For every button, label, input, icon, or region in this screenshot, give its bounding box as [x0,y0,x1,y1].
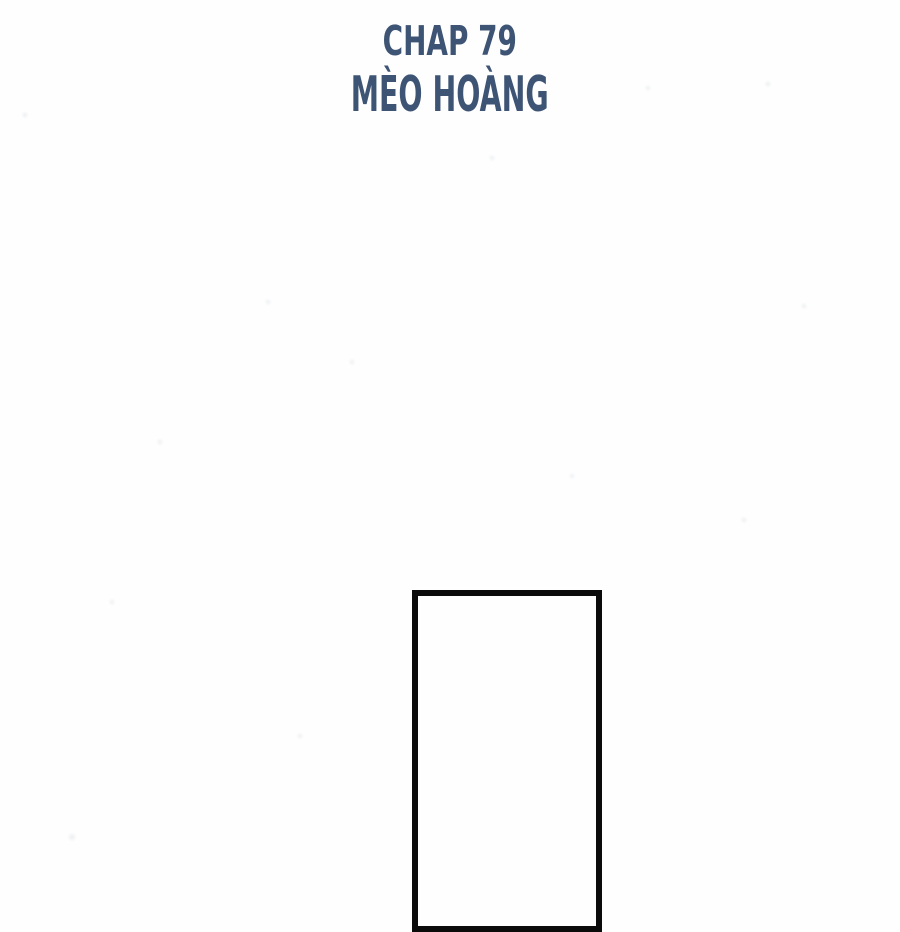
chapter-header: CHAP 79 MÈO HOÀNG [0,19,900,123]
chapter-number-line: CHAP 79 [0,19,900,63]
chapter-number: CHAP 79 [383,19,517,63]
comic-panel [412,590,602,932]
comic-page: CHAP 79 MÈO HOÀNG [0,0,900,900]
chapter-title: MÈO HOÀNG [351,67,549,123]
chapter-title-line: MÈO HOÀNG [0,67,900,123]
